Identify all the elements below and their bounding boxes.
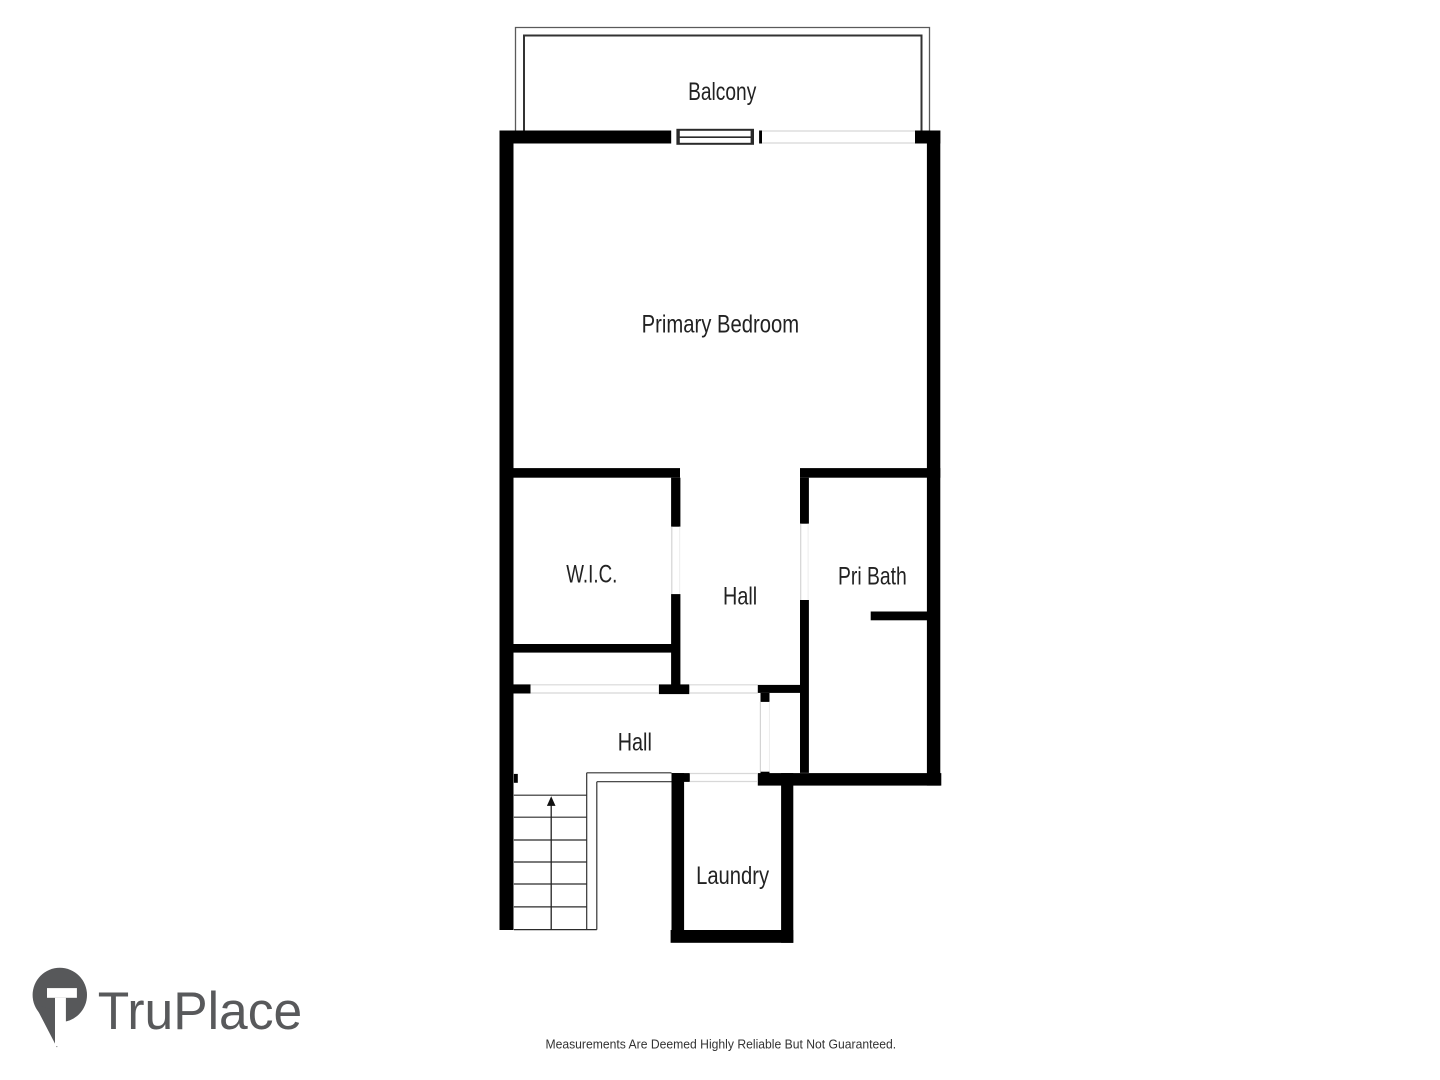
svg-text:Measurements Are Deemed Highly: Measurements Are Deemed Highly Reliable … <box>545 1036 896 1051</box>
svg-text:Hall: Hall <box>618 729 652 757</box>
svg-text:Laundry: Laundry <box>696 862 769 890</box>
svg-text:W.I.C.: W.I.C. <box>566 560 617 588</box>
svg-text:Hall: Hall <box>723 583 757 611</box>
svg-text:TruPlace: TruPlace <box>98 982 302 1041</box>
svg-text:Primary Bedroom: Primary Bedroom <box>642 311 800 339</box>
svg-text:Balcony: Balcony <box>688 78 757 106</box>
svg-text:Pri Bath: Pri Bath <box>838 562 907 590</box>
